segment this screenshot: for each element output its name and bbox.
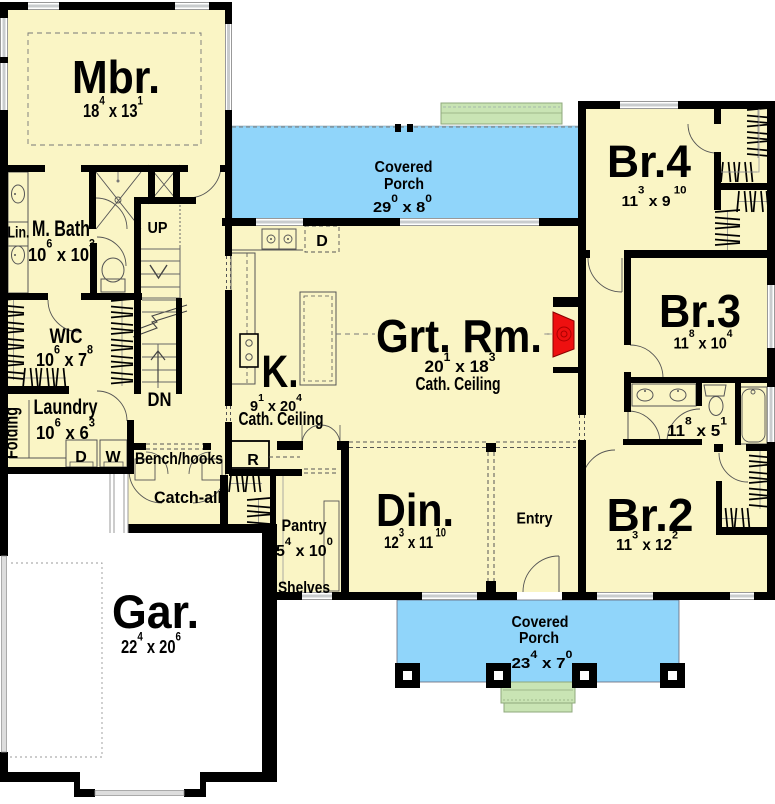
- svg-text:Br.2: Br.2: [607, 489, 694, 541]
- svg-text:D: D: [316, 233, 328, 250]
- svg-text:W: W: [105, 449, 121, 466]
- svg-text:Gar.: Gar.: [112, 585, 199, 638]
- svg-text:Entry: Entry: [517, 511, 553, 528]
- svg-text:Covered: Covered: [375, 159, 433, 176]
- svg-text:Folding: Folding: [2, 407, 23, 459]
- svg-text:Cath. Ceiling: Cath. Ceiling: [416, 373, 501, 394]
- svg-text:Shelves: Shelves: [278, 578, 330, 597]
- svg-text:Grt. Rm.: Grt. Rm.: [376, 310, 542, 362]
- svg-text:Porch: Porch: [384, 176, 424, 193]
- svg-text:Pantry: Pantry: [282, 516, 327, 535]
- svg-text:Br.4: Br.4: [607, 136, 691, 187]
- svg-text:M. Bath: M. Bath: [32, 216, 90, 241]
- svg-text:Bench/hooks: Bench/hooks: [135, 449, 223, 468]
- svg-text:DN: DN: [148, 390, 172, 411]
- svg-text:Cath. Ceiling: Cath. Ceiling: [239, 408, 324, 429]
- svg-text:Covered: Covered: [512, 614, 569, 631]
- svg-text:D: D: [75, 449, 87, 466]
- svg-text:R: R: [247, 452, 259, 469]
- svg-text:Porch: Porch: [519, 630, 559, 647]
- svg-text:UP: UP: [148, 220, 168, 237]
- svg-text:Mbr.: Mbr.: [72, 51, 160, 103]
- svg-text:Lin.: Lin.: [8, 225, 30, 242]
- svg-text:K.: K.: [262, 346, 299, 397]
- svg-text:Catch-all: Catch-all: [154, 488, 222, 507]
